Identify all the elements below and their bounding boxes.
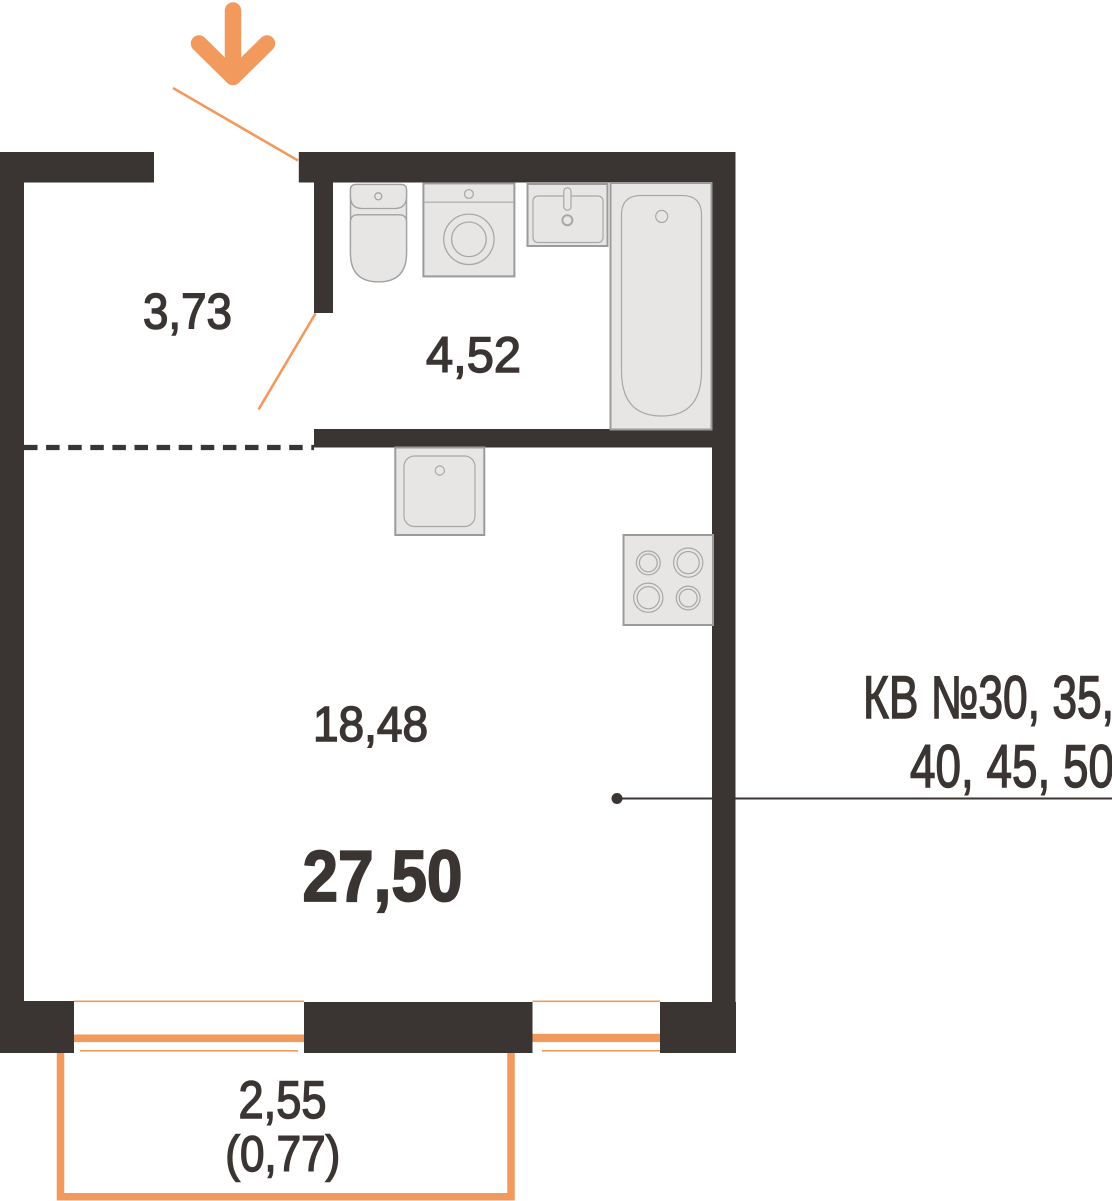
svg-text:27,50: 27,50: [303, 837, 463, 917]
svg-text:18,48: 18,48: [313, 698, 428, 752]
svg-text:2,55: 2,55: [239, 1071, 327, 1130]
svg-text:40, 45, 50: 40, 45, 50: [910, 733, 1112, 800]
svg-text:3,73: 3,73: [143, 284, 232, 340]
svg-text:КВ №30, 35,: КВ №30, 35,: [863, 664, 1112, 731]
svg-text:4,52: 4,52: [426, 327, 521, 383]
svg-text:(0,77): (0,77): [225, 1126, 340, 1182]
